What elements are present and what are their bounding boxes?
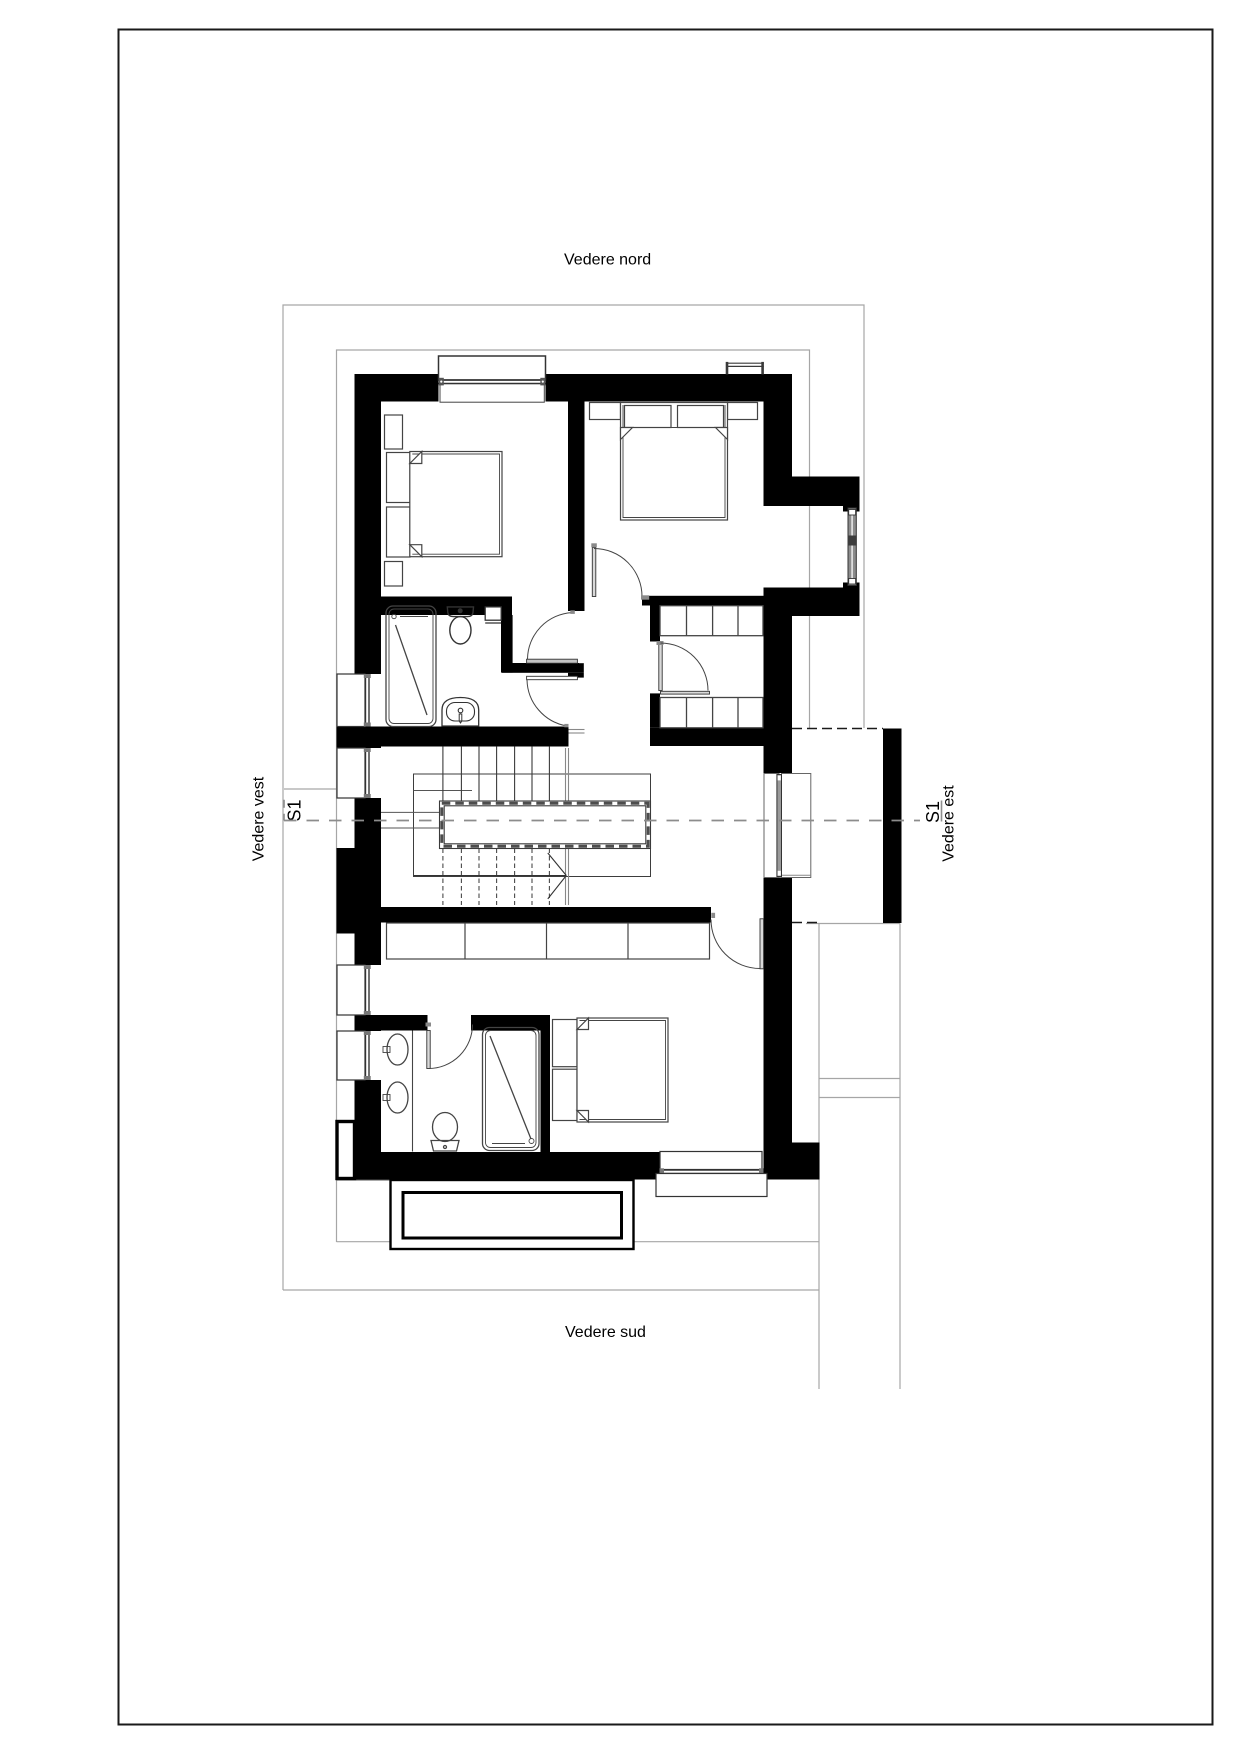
svg-text:S1: S1 xyxy=(285,799,305,821)
svg-text:Vedere vest: Vedere vest xyxy=(251,776,268,861)
svg-text:S1: S1 xyxy=(923,801,943,823)
svg-text:Vedere nord: Vedere nord xyxy=(564,252,651,269)
svg-text:Vedere sud: Vedere sud xyxy=(565,1324,646,1341)
svg-text:Vedere est: Vedere est xyxy=(941,785,958,862)
